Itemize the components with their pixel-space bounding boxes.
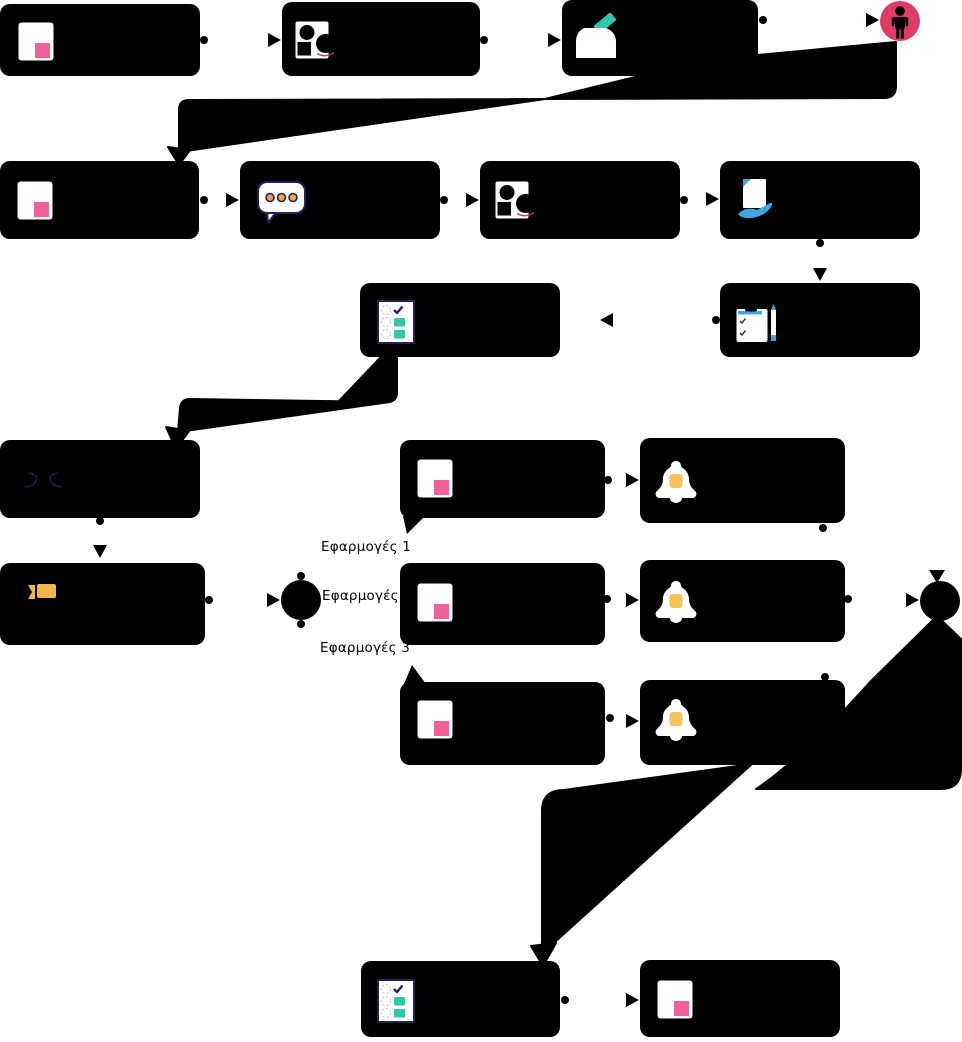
task-document-final[interactable]: [640, 960, 840, 1037]
arrowhead-down-icon: [813, 268, 827, 281]
task-document-app2[interactable]: [400, 563, 605, 645]
document-pink-icon: [18, 22, 54, 62]
person-icon: [880, 1, 920, 41]
arrowhead-right-icon: [906, 593, 919, 607]
arrowhead-left-icon: [600, 313, 613, 327]
task-profile-2[interactable]: [480, 161, 680, 239]
document-pink-icon: [657, 980, 693, 1020]
arrowhead-right-icon: [626, 714, 639, 728]
ballot-box-icon: [574, 12, 624, 62]
arrowhead-right-icon: [866, 13, 879, 27]
gateway-split[interactable]: [281, 580, 321, 620]
flowchart-canvas: Εφαρμογές 1 Εφαρμογές 2 Εφαρμογές 3: [0, 0, 962, 1042]
arrowhead-right-icon: [267, 593, 280, 607]
task-notify-app2[interactable]: [640, 560, 845, 642]
branch-label-1: Εφαρμογές 1: [321, 539, 411, 555]
speech-bubble-icon: [257, 181, 309, 227]
task-receive[interactable]: [720, 161, 920, 239]
branch-label-2: Εφαρμογές 2: [322, 588, 412, 604]
checklist-icon: [377, 300, 417, 346]
profile-shapes-icon: [495, 181, 541, 223]
arrowhead-right-icon: [268, 33, 281, 47]
task-document-1[interactable]: [0, 4, 200, 76]
task-chat[interactable]: [240, 161, 440, 239]
branch-label-3: Εφαρμογές 3: [320, 640, 410, 656]
task-submit[interactable]: [562, 0, 758, 76]
task-clipboard[interactable]: [720, 283, 920, 357]
arrowhead-right-icon: [626, 473, 639, 487]
checklist-icon: [377, 979, 417, 1025]
task-document-2[interactable]: [0, 161, 199, 239]
megaphone-icon: [26, 583, 60, 601]
arrowhead-right-icon: [226, 193, 239, 207]
arrowhead-down-icon: [93, 545, 107, 558]
hand-document-icon: [738, 177, 780, 223]
profile-shapes-icon: [295, 21, 341, 63]
task-code[interactable]: [0, 440, 200, 518]
arrowhead-right-icon: [466, 193, 479, 207]
arrowhead-right-icon: [548, 33, 561, 47]
event-person[interactable]: [880, 1, 920, 41]
task-notify-app3[interactable]: [640, 680, 845, 765]
swoosh-arrow-top: [168, 42, 896, 165]
document-pink-icon: [417, 700, 453, 740]
bell-icon: [654, 578, 698, 624]
task-checklist-2[interactable]: [361, 961, 560, 1037]
arrowhead-right-icon: [626, 993, 639, 1007]
document-pink-icon: [17, 181, 53, 221]
bell-icon: [654, 696, 698, 742]
swoosh-arrow-bottom: [531, 616, 961, 966]
arrowhead-right-icon: [626, 593, 639, 607]
bell-icon: [654, 458, 698, 504]
swoosh-arrow-middle: [166, 358, 397, 449]
task-document-app3[interactable]: [400, 682, 605, 765]
task-announce[interactable]: [0, 563, 205, 645]
gateway-merge[interactable]: [920, 581, 960, 621]
document-pink-icon: [417, 583, 453, 623]
task-notify-app1[interactable]: [640, 438, 845, 523]
arrowhead-right-icon: [706, 192, 719, 206]
task-profile-1[interactable]: [282, 2, 480, 76]
document-pink-icon: [417, 459, 453, 499]
clipboard-pen-icon: [736, 302, 780, 350]
code-brackets-icon: [22, 468, 66, 492]
task-checklist-1[interactable]: [360, 283, 560, 357]
task-document-app1[interactable]: [400, 440, 605, 518]
